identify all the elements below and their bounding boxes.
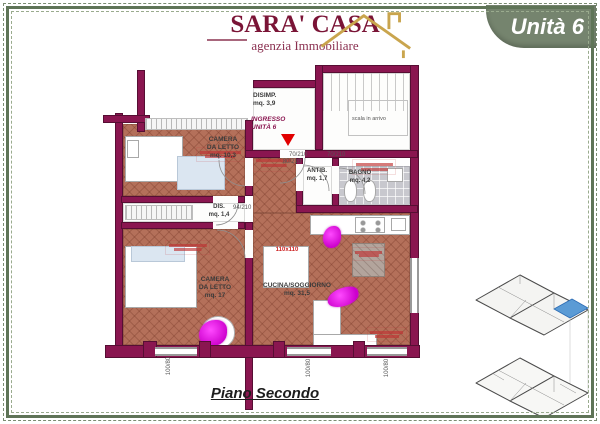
wall-below-bagno (296, 205, 418, 213)
pillar-4 (353, 341, 365, 358)
rug-camera1 (177, 156, 225, 190)
dim-bagno-door: 70/210 (327, 152, 351, 158)
page: SARA' CASA agenzia Immobiliare Unità 6 (0, 0, 600, 424)
radiator-dis (125, 205, 193, 220)
unit-badge: Unità 6 (486, 5, 596, 48)
door-gap-camera1 (245, 158, 253, 186)
window-right-balcony (410, 258, 419, 313)
room-label-cucina: CUCINA/SOGGIORNO mq. 31,5 (251, 282, 343, 298)
dim-dis-door: 94/210 (233, 205, 257, 211)
dim-window-right: 100/80 (384, 353, 390, 383)
wall-stair-top (315, 65, 418, 73)
room-label-ingresso: INGRESSO UNITÀ 6 (251, 116, 301, 132)
entrance-arrow-icon (281, 134, 295, 146)
dim-window-left: 100/80 (166, 351, 172, 381)
red-stamp-shower (353, 248, 384, 260)
door-gap-dis-bottom (213, 222, 238, 229)
building-axonometric-overview (470, 260, 592, 418)
table-size-label: 110x110 (267, 247, 307, 253)
window-bottom-left (155, 347, 197, 356)
wall-topleft-horizontal (103, 115, 150, 123)
dim-window-center: 100/80 (306, 353, 312, 383)
dim-entrance-door: 80/210 (279, 159, 305, 165)
wall-stair-left (315, 65, 323, 150)
room-label-antib: ANTIB. mq. 1,7 (298, 168, 336, 183)
unit-badge-label: Unità 6 (511, 14, 584, 40)
red-stamp-cucina (368, 328, 406, 341)
room-label-camera2: CAMERA DA LETTO mq. 17 (183, 276, 247, 300)
stairs-label: scala in arrivo (339, 116, 399, 122)
red-stamp-camera2 (166, 241, 209, 254)
room-label-bagno: BAGNO mq. 4,2 (339, 170, 381, 185)
wall-disimp-top (253, 80, 323, 88)
plan-title: Piano Secondo (155, 385, 375, 402)
pillow-camera1 (127, 140, 139, 158)
door-gap-camera2 (245, 230, 253, 258)
wall-left (115, 113, 123, 353)
door-gap-dis-top (213, 196, 238, 203)
room-label-dis: DIS. mq. 1,4 (203, 204, 235, 219)
pillar-3 (273, 341, 285, 358)
window-camera1-top (145, 118, 248, 130)
floor-plan: CAMERA DA LETTO mq. 10,3 DISIMP. mq. 3,9… (103, 58, 468, 393)
pillar-2 (199, 341, 211, 358)
dim-antib-door: 70/210 (289, 152, 313, 158)
cooktop (355, 217, 385, 233)
kitchen-sink (391, 218, 406, 231)
logo-flourish-line (207, 39, 247, 41)
room-label-disimp: DISIMP. mq. 3,9 (253, 92, 299, 108)
house-outline-icon (301, 6, 419, 60)
room-label-camera1: CAMERA DA LETTO mq. 10,3 (191, 136, 255, 160)
